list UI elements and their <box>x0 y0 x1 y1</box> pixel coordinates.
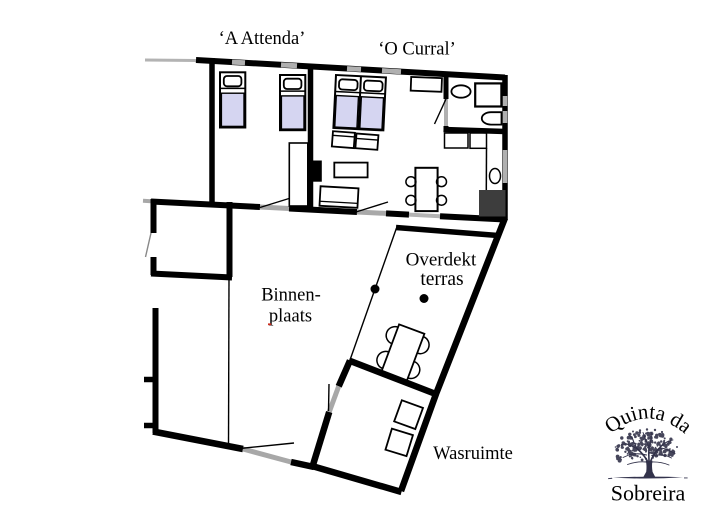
svg-text:‘O Curral’: ‘O Curral’ <box>378 40 456 60</box>
svg-text:Wasruimte: Wasruimte <box>433 444 513 464</box>
svg-text:‘A Attenda’: ‘A Attenda’ <box>219 29 306 49</box>
svg-text:Overdekt: Overdekt <box>406 250 477 271</box>
svg-text:Binnen-: Binnen- <box>261 286 321 306</box>
svg-text:plaats: plaats <box>269 307 312 327</box>
svg-text:Sobreira: Sobreira <box>611 481 686 506</box>
svg-text:terras: terras <box>420 269 463 290</box>
